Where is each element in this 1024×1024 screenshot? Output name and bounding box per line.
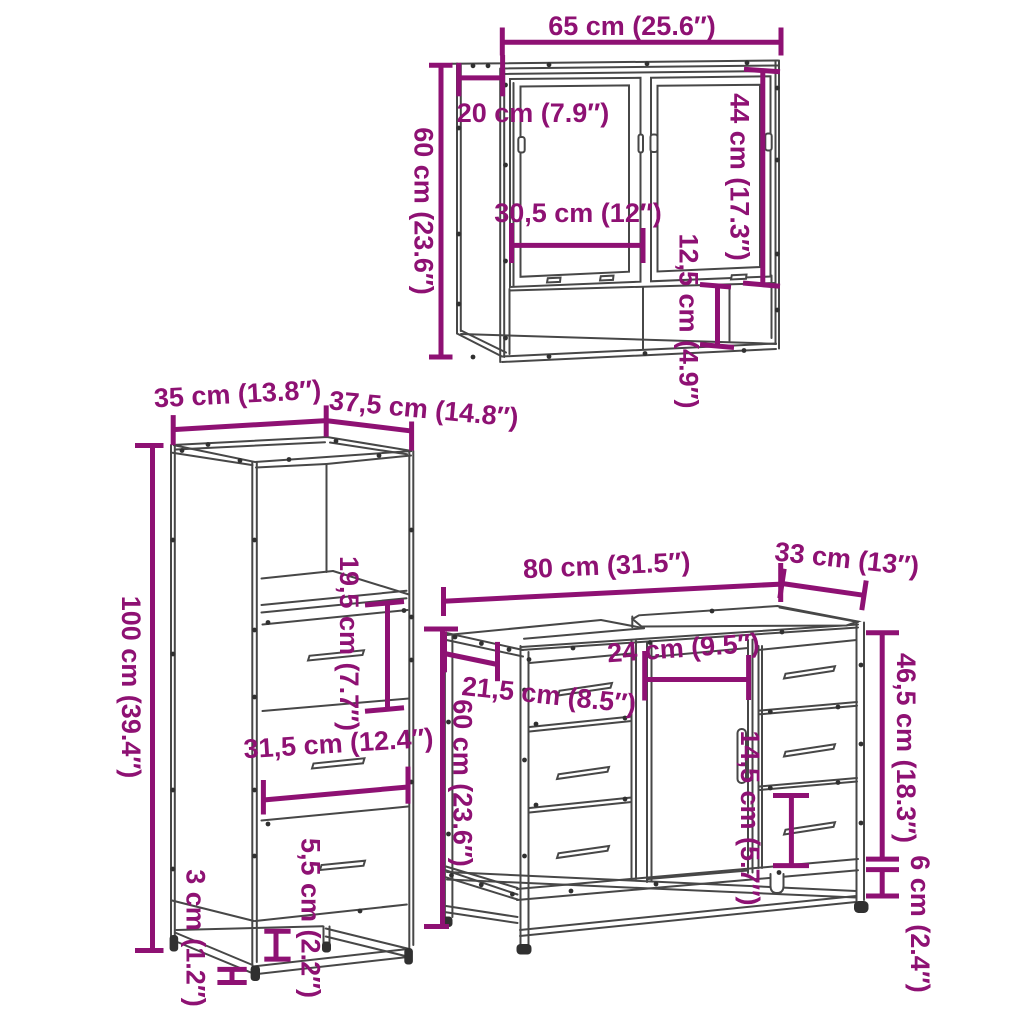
svg-text:6 cm (2.4″): 6 cm (2.4″) xyxy=(905,855,935,993)
svg-text:60 cm (23.6″): 60 cm (23.6″) xyxy=(409,127,439,295)
svg-text:30,5 cm (12″): 30,5 cm (12″) xyxy=(494,198,662,228)
svg-text:14,5 cm (5.7″): 14,5 cm (5.7″) xyxy=(735,730,765,905)
svg-text:5,5 cm (2.2″): 5,5 cm (2.2″) xyxy=(296,838,326,998)
svg-text:100 cm (39.4″): 100 cm (39.4″) xyxy=(116,596,146,779)
svg-text:65 cm (25.6″): 65 cm (25.6″) xyxy=(548,11,716,41)
svg-text:3 cm (1.2″): 3 cm (1.2″) xyxy=(181,869,211,1007)
svg-text:20 cm (7.9″): 20 cm (7.9″) xyxy=(457,98,610,128)
svg-text:46,5 cm (18.3″): 46,5 cm (18.3″) xyxy=(891,653,921,843)
svg-text:19,5 cm (7.7″): 19,5 cm (7.7″) xyxy=(334,556,364,731)
svg-text:12,5 cm (4.9″): 12,5 cm (4.9″) xyxy=(674,233,704,408)
svg-text:60 cm (23.6″): 60 cm (23.6″) xyxy=(448,699,478,867)
svg-text:44 cm (17.3″): 44 cm (17.3″) xyxy=(725,93,755,261)
